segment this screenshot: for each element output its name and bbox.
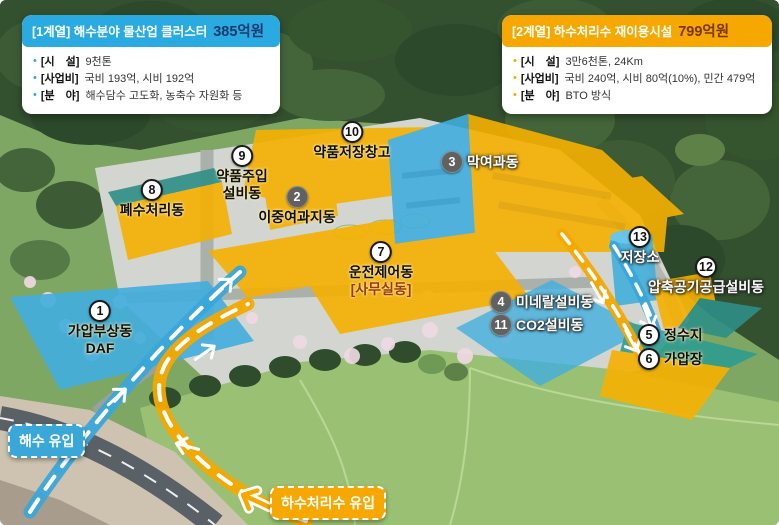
info-item-value: 9천톤 (85, 54, 111, 71)
marker-1: 1가압부상동DAF (68, 300, 132, 357)
marker-12: 12압축공기공급설비동 (648, 256, 764, 296)
info-box-item: •[시 설]9천톤 (33, 54, 269, 71)
marker-label: 설비동 (223, 185, 262, 202)
marker-number-badge: 13 (629, 226, 651, 248)
info-box-item: •[분 야]BTO 방식 (513, 88, 761, 105)
info-box-series1-header: [1계열] 해수분야 물산업 클러스터 385억원 (22, 15, 280, 47)
info-item-value: 국비 193억, 시비 192억 (85, 71, 195, 88)
marker-label: 가압장 (664, 351, 703, 368)
info-item-label: [시 설] (521, 54, 560, 71)
info-box-title: [2계열] 하수처리수 재이용시설 (512, 21, 672, 40)
marker-label: [사무실동] (351, 281, 412, 298)
wastewater-inflow-badge: 하수처리수 유입 (270, 486, 386, 520)
bullet-icon: • (513, 70, 517, 87)
info-box-amount: 799억원 (678, 20, 729, 41)
marker-10: 10약품저장창고 (313, 121, 390, 161)
info-box-series2-body: •[시 설]3만6천톤, 24Km•[사업비]국비 240억, 시비 80억(1… (502, 47, 772, 114)
info-box-title: [1계열] 해수분야 물산업 클러스터 (32, 21, 207, 40)
marker-number-badge: 8 (141, 179, 163, 201)
info-box-series1: [1계열] 해수분야 물산업 클러스터 385억원 •[시 설]9천톤•[사업비… (22, 15, 280, 114)
info-box-series2: [2계열] 하수처리수 재이용시설 799억원 •[시 설]3만6천톤, 24K… (502, 15, 772, 114)
marker-number-badge: 5 (638, 324, 660, 346)
marker-label: 압축공기공급설비동 (648, 279, 764, 296)
info-item-value: 국비 240억, 시비 80억(10%), 민간 479억 (565, 71, 756, 88)
marker-3: 3막여과동 (441, 151, 519, 173)
marker-label: 이중여과지동 (258, 209, 335, 226)
seawater-inflow-badge: 해수 유입 (8, 424, 85, 458)
marker-label: 약품주입 (216, 168, 268, 185)
marker-4: 4미네랄설비동 (490, 291, 593, 313)
marker-number-badge: 1 (89, 300, 111, 322)
info-item-label: [사업비] (41, 71, 79, 88)
marker-8: 8폐수처리동 (120, 179, 184, 219)
info-item-value: BTO 방식 (565, 88, 611, 105)
marker-label: CO2설비동 (516, 317, 583, 334)
info-item-value: 3만6천톤, 24Km (565, 54, 642, 71)
marker-7: 7운전제어동[사무실동] (349, 241, 413, 298)
marker-5: 5정수지 (638, 324, 703, 346)
marker-label: 정수지 (664, 327, 703, 344)
bullet-icon: • (33, 87, 37, 104)
marker-label: 약품저장창고 (313, 144, 390, 161)
marker-number-badge: 10 (341, 121, 363, 143)
info-box-item: •[시 설]3만6천톤, 24Km (513, 54, 761, 71)
marker-label: 가압부상동 (68, 323, 132, 340)
marker-number-badge: 11 (490, 314, 512, 336)
marker-label: 미네랄설비동 (516, 294, 593, 311)
info-item-label: [시 설] (41, 54, 80, 71)
marker-label: DAF (86, 340, 115, 357)
bullet-icon: • (33, 70, 37, 87)
bullet-icon: • (513, 87, 517, 104)
facility-site-map: 1가압부상동DAF2이중여과지동3막여과동4미네랄설비동5정수지6가압장7운전제… (0, 0, 779, 525)
marker-6: 6가압장 (638, 348, 703, 370)
info-box-item: •[사업비]국비 240억, 시비 80억(10%), 민간 479억 (513, 71, 761, 88)
bullet-icon: • (33, 53, 37, 70)
marker-number-badge: 2 (286, 186, 308, 208)
info-box-item: •[사업비]국비 193억, 시비 192억 (33, 71, 269, 88)
info-item-value: 해수담수 고도화, 농축수 자원화 등 (85, 88, 242, 105)
marker-13: 13저장소 (621, 226, 660, 266)
marker-label: 막여과동 (467, 154, 519, 171)
marker-11: 11CO2설비동 (490, 314, 583, 336)
info-item-label: [분 야] (521, 88, 560, 105)
info-box-series1-body: •[시 설]9천톤•[사업비]국비 193억, 시비 192억•[분 야]해수담… (22, 47, 280, 114)
marker-label: 운전제어동 (349, 264, 413, 281)
marker-number-badge: 12 (695, 256, 717, 278)
marker-number-badge: 7 (370, 241, 392, 263)
marker-number-badge: 4 (490, 291, 512, 313)
info-box-amount: 385억원 (213, 20, 264, 41)
marker-label: 저장소 (621, 249, 660, 266)
marker-9: 9약품주입설비동 (216, 145, 268, 202)
marker-2: 2이중여과지동 (258, 186, 335, 226)
marker-number-badge: 9 (231, 145, 253, 167)
info-item-label: [사업비] (521, 71, 559, 88)
bullet-icon: • (513, 53, 517, 70)
marker-number-badge: 3 (441, 151, 463, 173)
marker-number-badge: 6 (638, 348, 660, 370)
info-box-series2-header: [2계열] 하수처리수 재이용시설 799억원 (502, 15, 772, 47)
info-box-item: •[분 야]해수담수 고도화, 농축수 자원화 등 (33, 88, 269, 105)
marker-label: 폐수처리동 (120, 202, 184, 219)
info-item-label: [분 야] (41, 88, 80, 105)
